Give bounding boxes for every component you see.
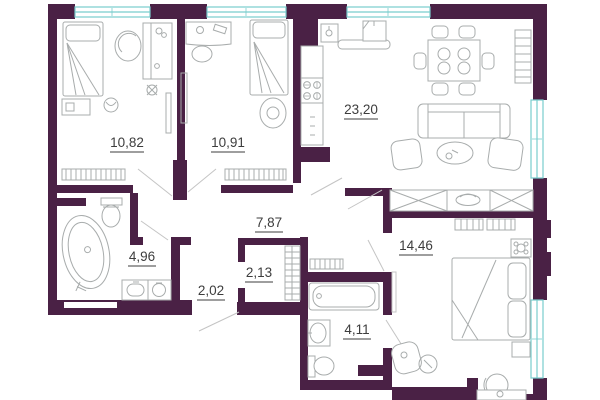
wall-bath2-bottom <box>300 380 392 390</box>
wall-bedroom-bottom <box>392 387 467 400</box>
bed-2 <box>250 20 288 95</box>
desk-master <box>477 390 526 400</box>
sink-2 <box>308 320 330 346</box>
wall-right-bump-2 <box>547 252 551 276</box>
room-label-hallway: 7,87 <box>256 215 282 230</box>
stove <box>301 78 323 103</box>
room-label-kitchen-living: 23,20 <box>344 102 378 117</box>
radiator-2 <box>225 169 286 180</box>
desk-chair-2 <box>192 46 212 62</box>
window-bedroom-1 <box>75 7 150 17</box>
wall-bath2-left <box>300 320 308 380</box>
door-bathroom-1 <box>141 221 168 240</box>
shoe-bench-2 <box>487 219 515 230</box>
wall-bath2-right-low <box>383 348 392 390</box>
bed-master <box>452 258 530 340</box>
nightstand <box>512 342 530 357</box>
wardrobe-row <box>390 190 533 211</box>
wall-bedroom-top <box>388 211 533 218</box>
door-entrance <box>199 312 239 331</box>
floor-plan: 10,82 10,91 23,20 7,87 4,96 2,02 2,13 14… <box>0 0 600 400</box>
bathtub-2 <box>309 283 379 310</box>
desk-2 <box>186 22 231 46</box>
wall-top-1 <box>150 4 207 19</box>
radiator-1 <box>62 169 125 180</box>
window-kitchen <box>347 7 430 17</box>
wall-bottom-closet <box>237 302 308 315</box>
wall-bath1-jog <box>130 237 143 245</box>
room-label-wardrobe-closet: 2,13 <box>246 265 272 280</box>
wall-bottom-jog <box>467 378 478 400</box>
room-label-bathroom-2: 4,11 <box>344 322 369 337</box>
opening-kitchen-1 <box>311 178 342 195</box>
wall-bath1-right-low <box>171 245 180 302</box>
door-master-bedroom <box>368 240 384 271</box>
room-label-bedroom-2: 10,91 <box>211 135 245 150</box>
flower-stand <box>511 239 531 257</box>
chaise-sofa <box>143 23 172 79</box>
plant-stand-1 <box>147 85 157 95</box>
wall-closet-left-up <box>238 245 245 262</box>
towel-radiator <box>310 259 343 269</box>
wall-kitchen-jog <box>301 147 330 162</box>
round-armchair-2 <box>260 98 286 128</box>
wall-closet-right <box>300 237 308 320</box>
window-master-bedroom <box>531 300 543 378</box>
door-leaf-master <box>392 272 396 312</box>
wall-right-upper <box>533 4 547 100</box>
window-living-right <box>531 100 543 178</box>
wall-right-bump-1 <box>547 220 551 238</box>
wall-shaft-slot <box>64 302 117 308</box>
door-bedroom-2 <box>188 169 216 192</box>
wall-room1-bottom <box>57 185 133 193</box>
bed-1 <box>63 22 103 96</box>
pouf-1 <box>104 98 118 112</box>
room-label-bedroom-1: 10,82 <box>110 135 144 150</box>
wall-top-3 <box>430 4 547 19</box>
wall-closet-left-low <box>238 288 245 302</box>
wall-right-mid <box>533 178 547 300</box>
shoe-bench-1 <box>455 219 483 230</box>
window-bedroom-2 <box>207 7 286 17</box>
round-chair-1 <box>115 31 141 61</box>
wall-divider-stub <box>173 160 187 200</box>
wall-toilet-niche <box>358 365 383 376</box>
floor-plan-drawing: 10,82 10,91 23,20 7,87 4,96 2,02 2,13 14… <box>0 0 600 400</box>
room-label-bathroom-1: 4,96 <box>129 249 155 264</box>
vanity-sinks <box>122 280 171 300</box>
armchair-right <box>487 137 524 171</box>
dining-table <box>414 26 494 95</box>
wall-bath2-top <box>308 272 387 282</box>
door-bathroom-2 <box>386 320 403 347</box>
room-label-entry-corridor: 2,02 <box>198 283 224 298</box>
wall-room2-bottom <box>221 185 293 193</box>
fridge <box>363 21 386 41</box>
wall-top-2 <box>286 4 347 19</box>
sofa <box>418 104 510 138</box>
wall-closet-top <box>238 238 308 245</box>
wall-left <box>48 4 57 315</box>
sideboard <box>515 30 531 83</box>
dresser-1 <box>62 99 90 115</box>
coffee-table <box>437 142 473 164</box>
wall-bath2-right-up <box>383 272 392 315</box>
console-shelf-1 <box>166 93 171 133</box>
wall-bath1-right-up <box>130 193 138 237</box>
toilet-1 <box>101 198 122 227</box>
closet-hangers <box>285 246 300 300</box>
armchair-left <box>390 138 423 171</box>
wall-bath1-stub <box>57 198 86 206</box>
wall-bath1-block <box>171 237 191 245</box>
door-bedroom-1 <box>138 169 172 196</box>
room-label-master-bedroom: 14,46 <box>399 238 433 253</box>
wall-right-corner-br <box>533 378 547 400</box>
toilet-2 <box>308 356 334 377</box>
armchair-master <box>390 340 424 376</box>
